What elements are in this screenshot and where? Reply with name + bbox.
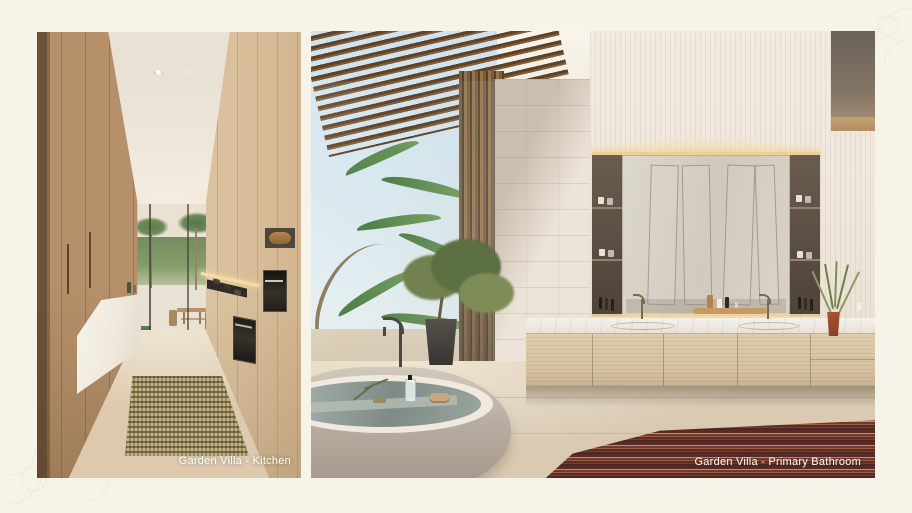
rolled-towel (429, 393, 450, 403)
vanity-shadow (526, 386, 875, 407)
toiletry-bottle (707, 295, 713, 308)
toiletry-bottle (735, 302, 738, 308)
soap-pump (408, 375, 412, 380)
toiletry-bottle (725, 297, 729, 308)
primary-bathroom-render-panel: Garden Villa - Primary Bathroom (311, 31, 875, 478)
oven-handle (265, 280, 283, 282)
wood-shelf-edge (831, 117, 875, 131)
cabinet-handle (89, 232, 91, 288)
glass-mullion (187, 192, 189, 348)
kitchen-render-panel: Garden Villa - Kitchen (37, 32, 301, 478)
shelf (592, 259, 622, 261)
sink-basin (739, 322, 799, 330)
outdoor-chair (169, 310, 177, 326)
toiletry-bottles (857, 303, 861, 310)
glass-mullion (149, 192, 151, 348)
toiletry-cup (797, 251, 803, 258)
toiletry-bottle (798, 297, 801, 309)
palm-trunk (195, 228, 197, 290)
potted-tree-foliage (459, 273, 514, 313)
soap-dispenser-bottle (405, 379, 416, 402)
tub-filler-outlet (383, 327, 386, 336)
kitchen-caption: Garden Villa - Kitchen (179, 455, 291, 467)
bathroom-caption: Garden Villa - Primary Bathroom (695, 456, 862, 468)
wall-oven (263, 270, 287, 312)
marble-countertop (526, 318, 875, 334)
outdoor-dining-table (177, 308, 207, 312)
sink-basin (611, 322, 675, 330)
recessed-ceiling-lights (154, 70, 163, 75)
right-shelf-niche (790, 155, 820, 316)
left-shelf-niche (592, 155, 622, 316)
toiletry-cup (598, 197, 604, 204)
drawer-seam (810, 334, 811, 386)
drawer-seam (663, 334, 664, 386)
table-leg (183, 312, 185, 324)
drawer-seam (592, 334, 593, 386)
cabinet-handle (67, 244, 69, 294)
toiletry-cup (796, 195, 802, 202)
toiletry-cup (599, 249, 605, 256)
mirror-reflection-glass-panel (647, 165, 679, 306)
vanity-wood-drawers (526, 334, 875, 386)
drawer-seam (737, 334, 738, 386)
counter-vase (127, 282, 131, 293)
brochure-page: Garden Villa - Kitchen (0, 0, 912, 513)
dark-cabinet-corner (831, 31, 875, 117)
toiletry-bottle (599, 297, 602, 309)
toiletry-bottle (717, 299, 722, 308)
counter-vase (133, 285, 136, 293)
shelf (790, 207, 820, 209)
countertop-tray (693, 308, 767, 314)
soap-bar (373, 397, 386, 403)
mirror-reflection-glass-panel (723, 165, 756, 306)
shelf (790, 259, 820, 261)
window-glass (311, 81, 494, 381)
basket (269, 232, 291, 244)
drawer-seam (810, 359, 875, 360)
mirror-reflection-glass-panel (682, 165, 712, 305)
shelf (592, 207, 622, 209)
